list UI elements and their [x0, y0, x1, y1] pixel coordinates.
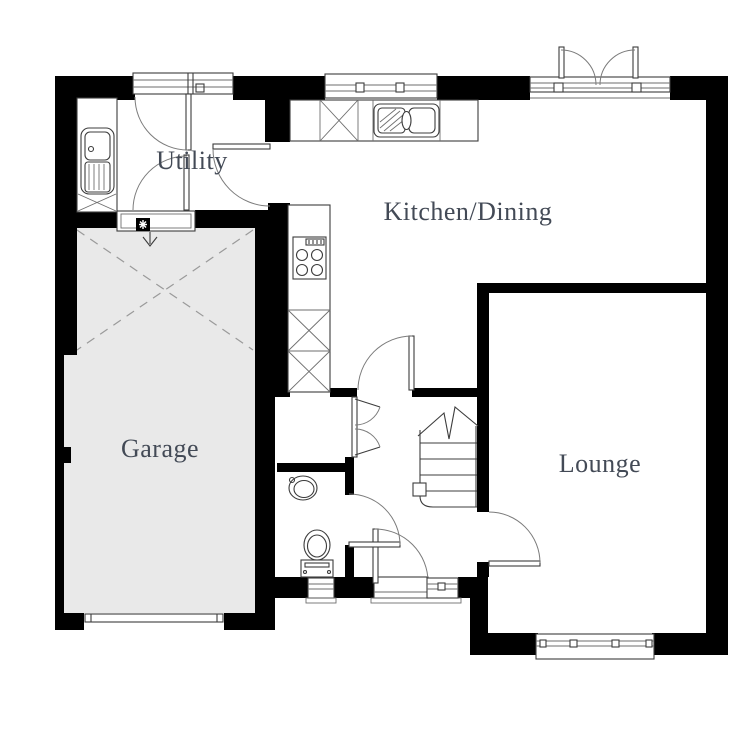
lounge-door [489, 512, 540, 566]
french-doors [530, 47, 670, 98]
garage-label: Garage [121, 434, 199, 463]
wc-window [306, 578, 336, 603]
wash-basin [289, 476, 317, 500]
toilet [301, 530, 333, 577]
fire-door-symbol [139, 220, 147, 229]
kitchen-window [325, 74, 437, 98]
garage-door [85, 614, 223, 622]
tall-units [288, 205, 330, 392]
front-window [427, 578, 458, 598]
storage-cupboard-doors [352, 397, 380, 457]
utility-label: Utility [156, 146, 227, 175]
kitchen-sink [374, 104, 439, 137]
kitchen-door [358, 336, 414, 390]
floor-plan: Utility Kitchen/Dining Garage Lounge [0, 0, 749, 750]
utility-sink [81, 128, 114, 194]
lounge-window [536, 634, 654, 659]
kitchen-worktop [290, 100, 478, 141]
stairs [413, 407, 478, 507]
lounge-label: Lounge [559, 449, 641, 478]
garage-floor [64, 228, 255, 613]
kitchen-dining-label: Kitchen/Dining [384, 197, 553, 226]
back-door [133, 73, 233, 150]
floor-plan-page: Utility Kitchen/Dining Garage Lounge [0, 0, 749, 750]
